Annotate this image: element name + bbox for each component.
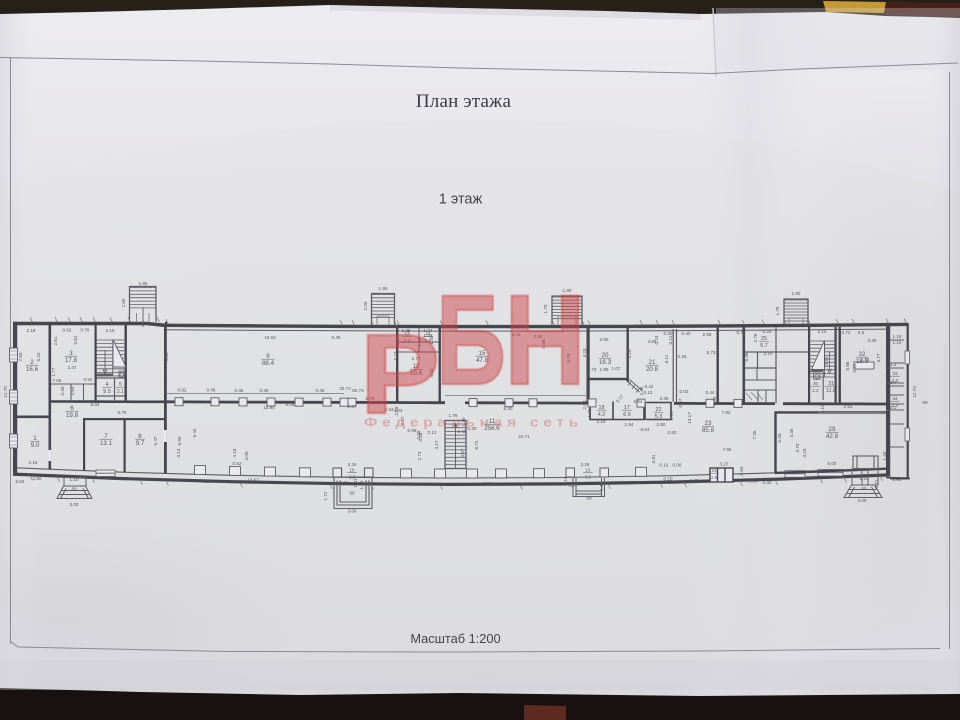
svg-text:1.21: 1.21 [861,357,870,362]
svg-text:0.12: 0.12 [852,363,857,372]
svg-text:34: 34 [892,396,898,401]
svg-text:3.60: 3.60 [348,509,357,514]
svg-text:69: 69 [71,487,77,492]
svg-text:0.45: 0.45 [235,388,244,393]
svg-text:20.8: 20.8 [646,366,659,373]
svg-text:12.70: 12.70 [3,386,8,398]
svg-text:1.72: 1.72 [323,491,328,500]
svg-text:0.92: 0.92 [178,388,187,393]
svg-text:5.44: 5.44 [192,428,197,437]
svg-text:3.28: 3.28 [581,462,590,467]
svg-text:17.8: 17.8 [65,357,78,364]
svg-text:3.00: 3.00 [858,498,867,503]
svg-text:1.07: 1.07 [612,366,621,371]
svg-text:2.36: 2.36 [660,396,669,401]
svg-text:0.45: 0.45 [458,429,467,434]
svg-text:1.16: 1.16 [893,340,902,345]
svg-text:3.5: 3.5 [585,475,592,480]
svg-text:6.72: 6.72 [474,440,479,449]
svg-text:0.82: 0.82 [668,430,677,435]
svg-text:0.44: 0.44 [706,390,715,395]
svg-text:Федеральная сеть: Федеральная сеть [364,415,583,430]
svg-text:30.72: 30.72 [339,386,351,391]
svg-text:3.70: 3.70 [795,443,800,452]
svg-text:0.57: 0.57 [678,398,683,407]
svg-text:0.6: 0.6 [858,330,865,335]
svg-text:2.18: 2.18 [27,328,36,333]
svg-text:0.13: 0.13 [176,448,181,457]
svg-text:1.99: 1.99 [600,367,609,372]
svg-text:1.91: 1.91 [669,411,674,420]
svg-text:2.2: 2.2 [812,388,819,393]
svg-text:2.1: 2.1 [117,389,124,395]
svg-text:4.77: 4.77 [876,353,881,362]
svg-text:2.18: 2.18 [29,460,38,465]
svg-text:15: 15 [586,468,591,473]
svg-text:0.30: 0.30 [260,388,269,393]
svg-text:69: 69 [922,400,928,405]
svg-text:2.15: 2.15 [818,329,827,334]
svg-text:2.96: 2.96 [703,332,712,337]
svg-text:2.73: 2.73 [417,451,422,460]
svg-text:3.3: 3.3 [890,362,897,367]
svg-text:16.84: 16.84 [482,481,494,486]
svg-text:19.8: 19.8 [66,412,79,419]
svg-text:0.24: 0.24 [654,335,659,344]
svg-text:Н: Н [504,269,586,412]
svg-text:8.04: 8.04 [91,402,100,407]
svg-text:13.17: 13.17 [687,412,692,424]
svg-text:1.90: 1.90 [587,408,592,417]
svg-text:5.23: 5.23 [36,352,41,361]
svg-text:0.45: 0.45 [207,388,216,393]
svg-text:5.3: 5.3 [655,414,663,420]
svg-text:3.50: 3.50 [824,356,829,365]
svg-text:2.65: 2.65 [121,298,126,307]
svg-text:0.12: 0.12 [644,390,653,395]
svg-text:2.80: 2.80 [657,422,666,427]
svg-text:2.73: 2.73 [588,367,597,372]
svg-text:3.90: 3.90 [600,337,609,342]
svg-text:1 этаж: 1 этаж [439,192,483,208]
svg-text:2.57: 2.57 [348,404,357,409]
svg-text:42.8: 42.8 [826,433,839,440]
svg-text:2.8: 2.8 [711,475,718,480]
svg-text:9.7: 9.7 [136,440,145,447]
svg-text:5.66: 5.66 [845,361,850,370]
svg-text:3.30: 3.30 [868,338,877,343]
svg-text:1.18: 1.18 [893,334,902,339]
svg-text:1.31: 1.31 [353,478,358,487]
svg-text:2.78: 2.78 [753,333,758,342]
svg-text:4.09: 4.09 [244,451,249,460]
svg-text:4.18: 4.18 [232,448,237,457]
svg-text:7.35: 7.35 [752,430,757,439]
svg-text:0.55: 0.55 [712,396,717,405]
svg-text:Б: Б [436,269,506,412]
svg-text:0.40: 0.40 [682,331,691,336]
svg-text:2.19: 2.19 [597,419,606,424]
svg-text:9.5: 9.5 [103,389,111,395]
svg-text:7.60: 7.60 [18,352,23,361]
svg-text:9.0: 9.0 [31,442,40,449]
svg-text:5.47: 5.47 [153,436,158,445]
svg-text:6.90: 6.90 [177,436,182,445]
svg-text:0.45: 0.45 [332,335,341,340]
svg-text:24: 24 [712,468,717,473]
svg-text:1.94: 1.94 [625,422,634,427]
svg-text:3.00: 3.00 [70,502,79,507]
svg-text:1.10: 1.10 [70,477,79,482]
svg-text:Масштаб 1:200: Масштаб 1:200 [410,631,500,646]
svg-text:0.42: 0.42 [645,384,654,389]
svg-text:7.05: 7.05 [53,378,62,383]
svg-text:0.12: 0.12 [668,335,673,344]
svg-text:12.70: 12.70 [912,386,917,398]
svg-text:2.00: 2.00 [363,301,368,310]
svg-text:0.52: 0.52 [233,461,242,466]
svg-text:0.62: 0.62 [63,328,72,333]
svg-text:0.71: 0.71 [874,479,879,488]
svg-text:1.45: 1.45 [359,480,364,489]
svg-text:4.91: 4.91 [651,454,656,463]
svg-text:5.62: 5.62 [73,335,78,344]
svg-text:0.20: 0.20 [203,479,212,484]
svg-text:1.45: 1.45 [599,482,604,491]
svg-text:0.20: 0.20 [690,478,699,483]
svg-text:33: 33 [892,371,898,376]
svg-text:2.1: 2.1 [890,405,897,410]
svg-text:5.03: 5.03 [164,352,169,361]
svg-text:0.10: 0.10 [664,477,673,482]
svg-text:3.20: 3.20 [802,448,807,457]
svg-text:24.71: 24.71 [518,434,530,439]
svg-text:3.34: 3.34 [348,462,357,467]
svg-text:5.46: 5.46 [744,352,749,361]
svg-text:3.47: 3.47 [68,365,77,370]
svg-text:1.85: 1.85 [139,281,148,286]
svg-text:2.72: 2.72 [569,483,578,488]
svg-text:2.80: 2.80 [33,476,42,481]
svg-text:2.91: 2.91 [844,404,853,409]
svg-text:4.19: 4.19 [627,349,632,358]
svg-text:30: 30 [813,381,819,386]
svg-text:2.10: 2.10 [764,351,773,356]
svg-text:0.45: 0.45 [316,388,325,393]
svg-text:5.84: 5.84 [16,479,25,484]
svg-text:6.9: 6.9 [623,412,631,418]
svg-text:3.27: 3.27 [720,462,729,467]
svg-text:88.4: 88.4 [262,360,275,367]
svg-text:16.3: 16.3 [599,359,612,366]
svg-text:0.03: 0.03 [680,389,689,394]
svg-text:85.8: 85.8 [702,427,715,434]
svg-text:0.72: 0.72 [842,330,851,335]
svg-text:0.63: 0.63 [739,466,744,475]
svg-text:7.92: 7.92 [722,410,731,415]
svg-text:0.20: 0.20 [664,331,673,336]
svg-text:6.11: 6.11 [664,354,669,363]
svg-text:1.95: 1.95 [379,286,388,291]
svg-text:0.64: 0.64 [70,386,75,395]
svg-text:13.1: 13.1 [100,440,113,447]
svg-text:1.75: 1.75 [775,306,780,315]
svg-text:69: 69 [861,486,867,491]
svg-text:15.95: 15.95 [263,405,275,410]
svg-text:13.67: 13.67 [247,478,259,483]
svg-text:2.34: 2.34 [678,354,687,359]
svg-text:4.17: 4.17 [434,440,439,449]
svg-text:16.02: 16.02 [264,335,276,340]
svg-text:7.96: 7.96 [723,447,732,452]
svg-text:5.7: 5.7 [760,343,768,349]
svg-text:4.07: 4.07 [460,448,465,457]
svg-text:0.20: 0.20 [763,329,772,334]
svg-text:8.00: 8.00 [828,461,837,466]
svg-text:0.75: 0.75 [737,330,746,335]
svg-text:8.64: 8.64 [641,427,650,432]
svg-text:0.14: 0.14 [749,479,758,484]
svg-text:План этажа: План этажа [416,91,512,112]
svg-text:3.4: 3.4 [890,380,897,385]
svg-text:0.19: 0.19 [563,476,568,485]
svg-text:1.44: 1.44 [882,451,887,460]
svg-text:4.35: 4.35 [789,428,794,437]
svg-text:1.80: 1.80 [792,291,801,296]
svg-text:2.40: 2.40 [763,480,772,485]
svg-text:0.78: 0.78 [81,328,90,333]
svg-text:5.73: 5.73 [707,350,716,355]
svg-text:1.77: 1.77 [51,367,56,376]
svg-text:2.15: 2.15 [106,328,115,333]
svg-text:1.10: 1.10 [860,476,869,481]
svg-text:5.43: 5.43 [777,433,782,442]
svg-text:6.64: 6.64 [634,399,643,404]
svg-text:69: 69 [349,491,355,496]
svg-text:5.76: 5.76 [118,410,127,415]
svg-text:8.04: 8.04 [286,402,295,407]
svg-text:4.2: 4.2 [598,412,606,418]
svg-text:0.12: 0.12 [820,404,825,413]
svg-text:69: 69 [586,496,592,501]
svg-text:10: 10 [350,468,355,473]
svg-text:0.16: 0.16 [660,463,669,468]
svg-text:2.61: 2.61 [53,336,58,345]
svg-text:0.06: 0.06 [673,463,682,468]
svg-text:0.40: 0.40 [60,386,65,395]
svg-text:2.70: 2.70 [340,481,349,486]
svg-text:1.94: 1.94 [893,477,902,482]
svg-text:11.8: 11.8 [826,388,836,394]
svg-text:0.52: 0.52 [84,377,93,382]
svg-text:16.6: 16.6 [26,366,39,373]
